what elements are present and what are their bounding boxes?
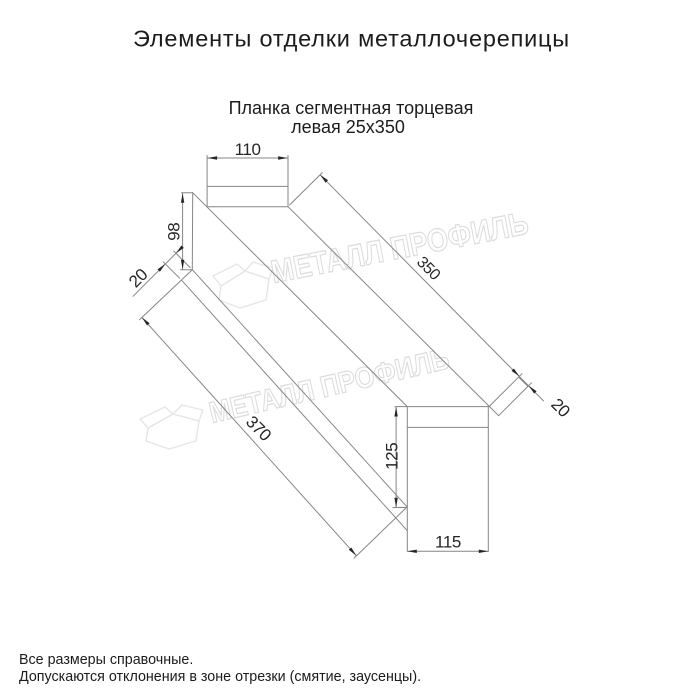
svg-text:Все размеры справочные.: Все размеры справочные.: [19, 652, 193, 668]
svg-text:Планка сегментная торцевая: Планка сегментная торцевая: [229, 98, 474, 118]
svg-text:левая 25х350: левая 25х350: [291, 117, 405, 137]
svg-text:Допускаются отклонения в зоне: Допускаются отклонения в зоне отрезки (с…: [19, 669, 421, 685]
svg-text:125: 125: [383, 443, 402, 470]
svg-text:110: 110: [235, 140, 261, 159]
svg-text:98: 98: [164, 223, 183, 241]
svg-text:115: 115: [435, 533, 461, 552]
svg-text:Элементы отделки металлочерепи: Элементы отделки металлочерепицы: [133, 26, 570, 52]
